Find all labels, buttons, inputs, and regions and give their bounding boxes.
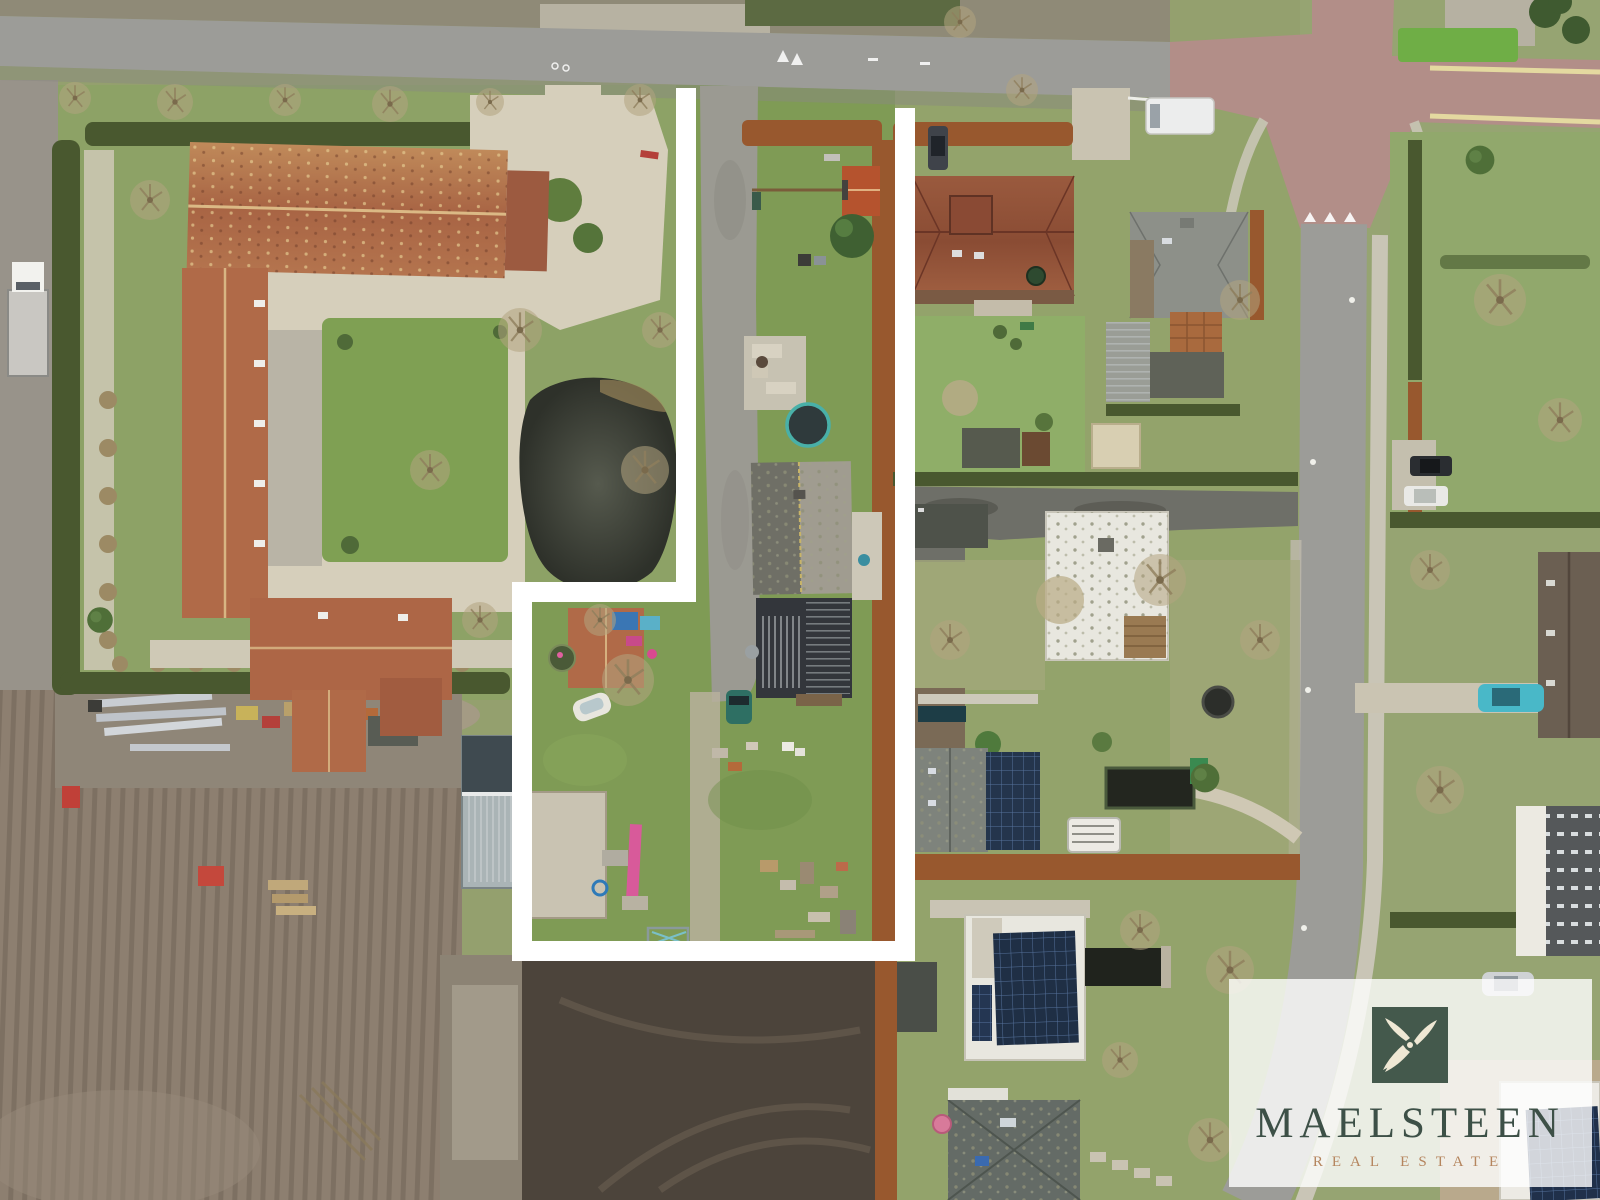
garden-cart	[814, 256, 826, 265]
chimney	[793, 490, 805, 499]
dark-gray-car	[928, 126, 948, 170]
plot-path-south	[690, 692, 720, 948]
dark-paving	[1148, 352, 1224, 398]
mulch-patch	[1022, 432, 1050, 466]
mower-green	[1020, 322, 1034, 330]
flue-pipe	[745, 645, 759, 659]
farm-hedge-north	[85, 122, 505, 146]
round-bed	[549, 645, 575, 671]
red-trailer	[198, 866, 224, 886]
terrace	[974, 300, 1032, 316]
bench	[824, 154, 840, 161]
gray-roof-house-bottom	[933, 1088, 1080, 1200]
water-feature	[1085, 948, 1161, 986]
red-roof-house	[912, 176, 1074, 316]
farm-west-wing-roof	[182, 268, 268, 618]
parked-black-car	[1410, 456, 1452, 476]
aerial-photo: MAELSTEEN REAL ESTATE	[0, 0, 1600, 1200]
mid-hedge-row	[893, 472, 1298, 486]
plot-annex-dark-roof	[745, 598, 852, 706]
farm-barn-roof	[187, 142, 550, 279]
aerial-photo-canvas: MAELSTEEN REAL ESTATE	[0, 0, 1600, 1200]
patio-stones	[268, 330, 322, 566]
pink-umbrella	[933, 1115, 951, 1133]
tyre-stack	[88, 700, 102, 712]
fire-pit	[1203, 687, 1233, 717]
skylight	[1000, 1118, 1016, 1127]
front-hedge-rust	[893, 122, 1073, 146]
red-crate	[62, 786, 80, 808]
farmstead	[8, 85, 677, 772]
rust-hedge-vertical	[875, 958, 897, 1200]
brick-chimney	[950, 196, 992, 234]
brand-tagline: REAL ESTATE	[1313, 1154, 1507, 1170]
bright-lawn-strip	[1398, 28, 1518, 62]
mower	[798, 254, 811, 266]
brand-wordmark: MAELSTEEN	[1255, 1100, 1565, 1147]
hot-tub	[858, 554, 870, 566]
teal-parked-car	[1478, 684, 1544, 712]
white-van	[1146, 98, 1214, 134]
neighbour-driveway	[1072, 88, 1130, 160]
parked-truck	[8, 262, 48, 376]
garden-gate	[752, 192, 761, 210]
big-bush	[830, 214, 874, 258]
sand-pad	[452, 985, 518, 1160]
rust-hedge-band	[880, 854, 1300, 880]
skylight-roof-building	[1516, 806, 1600, 956]
machine	[602, 850, 628, 866]
green-tank	[1027, 267, 1045, 285]
dark-garage	[897, 962, 937, 1032]
beige-pavilion	[1092, 424, 1140, 468]
teal-car	[726, 690, 752, 724]
wood-terrace	[1124, 616, 1166, 658]
greenhouse	[462, 736, 520, 888]
watermark: MAELSTEEN REAL ESTATE	[1229, 979, 1592, 1187]
farm-track	[0, 80, 58, 720]
concrete-pad	[528, 792, 606, 918]
dark-shed	[962, 428, 1020, 468]
plot-house	[751, 461, 853, 595]
courtyard-lawn	[322, 318, 508, 562]
plot-hedge-north	[742, 120, 882, 146]
farm-entrance	[545, 85, 601, 105]
roof-hatch	[1098, 538, 1114, 552]
boom-lift	[1068, 818, 1120, 852]
north-hedge	[745, 0, 960, 26]
trampoline	[787, 404, 829, 446]
farm-hedge-west	[52, 140, 80, 695]
terracotta-patio	[1170, 312, 1222, 352]
blue-tarp	[975, 1156, 989, 1166]
brown-roof-house	[1538, 552, 1600, 738]
dark-pond	[1106, 768, 1194, 808]
parked-white-car	[1404, 486, 1448, 506]
plot-garden-shed	[842, 166, 880, 216]
pool-under-construction	[918, 706, 966, 722]
